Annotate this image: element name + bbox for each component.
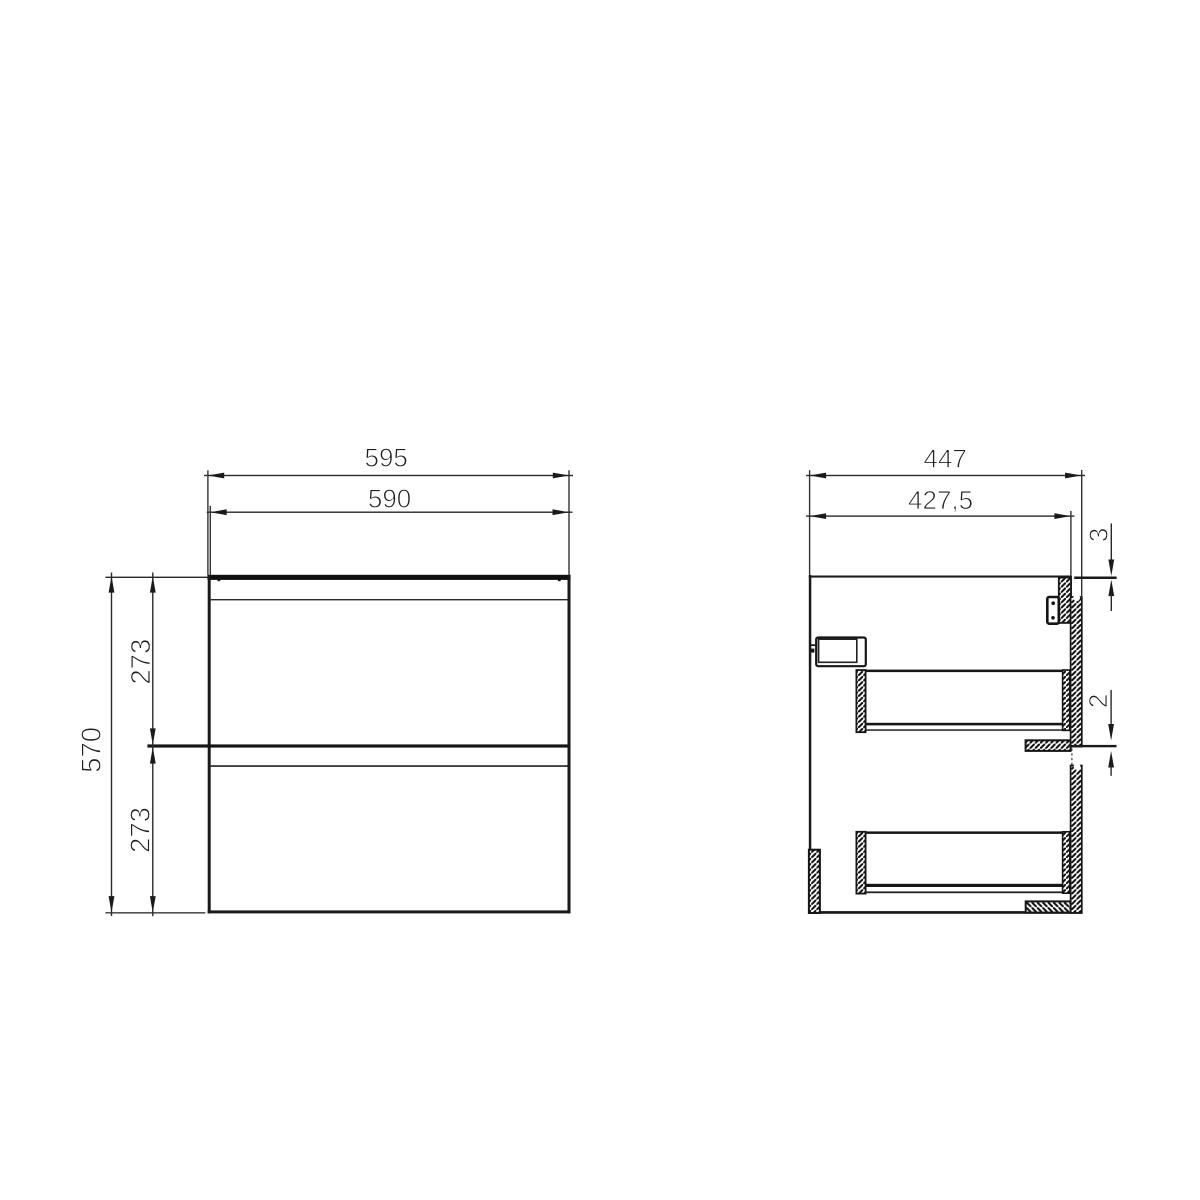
svg-text:273: 273: [124, 807, 155, 853]
svg-text:3: 3: [1083, 528, 1113, 542]
svg-text:427,5: 427,5: [908, 485, 973, 515]
svg-text:2: 2: [1083, 694, 1113, 708]
svg-text:447: 447: [924, 444, 967, 474]
svg-text:273: 273: [125, 639, 156, 685]
svg-text:590: 590: [368, 484, 411, 514]
svg-text:570: 570: [76, 727, 107, 773]
svg-text:595: 595: [365, 443, 408, 473]
